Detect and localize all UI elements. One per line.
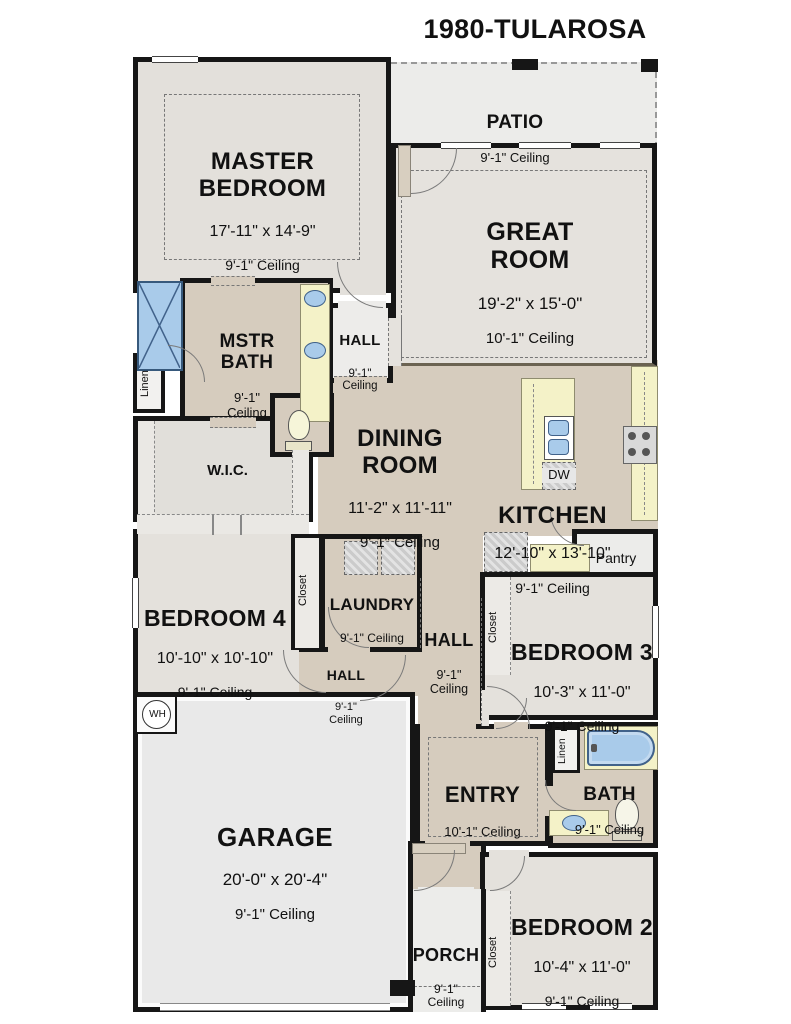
sink xyxy=(304,342,326,359)
label-garage: GARAGE 20'-0" x 20'-4" 9'-1" Ceiling xyxy=(180,805,370,942)
opening xyxy=(420,722,476,731)
opening xyxy=(388,318,402,366)
label-bedroom2: BEDROOM 2 10'-4" x 11'-0" 9'-1" Ceiling xyxy=(508,897,656,1024)
label-master-bedroom: MASTER BEDROOM 17'-11" x 14'-9" 9'-1" Ce… xyxy=(160,131,365,292)
wic-shelf xyxy=(137,514,309,534)
label-great-room: GREAT ROOM 19'-2" x 15'-0" 10'-1" Ceilin… xyxy=(430,200,630,365)
label-closet-b3: Closet xyxy=(487,595,509,659)
garage-door xyxy=(160,1003,390,1011)
page-title: 1980-TULAROSA xyxy=(400,14,670,44)
window xyxy=(152,56,198,63)
label-bedroom4: BEDROOM 4 10'-10" x 10'-10" 9'-1" Ceilin… xyxy=(140,588,290,719)
label-hall-b4: HALL 9'-1" Ceiling xyxy=(315,650,377,744)
floor-plan: 1980-TULAROSA xyxy=(0,0,791,1024)
kitchen-sink xyxy=(544,416,574,460)
patio-post xyxy=(641,59,658,72)
patio-post xyxy=(512,59,538,70)
label-porch: PORCH 9'-1" Ceiling xyxy=(410,927,482,1024)
label-pantry: Pantry xyxy=(576,551,656,567)
dishwasher-label: DW xyxy=(542,468,576,483)
stove xyxy=(623,426,657,464)
label-closet-b2: Closet xyxy=(487,920,509,984)
label-mstr-bath: MSTR BATH 9'-1" Ceiling xyxy=(196,313,298,438)
sink xyxy=(304,290,326,307)
wic-shelf xyxy=(138,421,155,517)
label-patio: PATIO 9'-1" Ceiling xyxy=(430,94,600,184)
label-bath: BATH 9'-1" Ceiling xyxy=(562,766,657,856)
hall-dashed-line xyxy=(481,598,482,726)
patio-door-leaf xyxy=(398,145,411,197)
window xyxy=(132,578,139,628)
label-wic: W.I.C. xyxy=(180,463,275,480)
island-dashed xyxy=(533,384,534,484)
label-dining-room: DINING ROOM 11'-2" x 11'-11" 9'-1" Ceili… xyxy=(325,408,475,570)
label-closet-b4: Closet xyxy=(297,558,319,622)
label-bedroom3: BEDROOM 3 10'-3" x 11'-0" 9'-1" Ceiling xyxy=(508,622,656,753)
window xyxy=(600,142,640,149)
label-hall-main: HALL 9'-1" Ceiling xyxy=(418,612,480,714)
label-hall-upper: HALL 9'-1" Ceiling xyxy=(331,315,389,411)
label-linen-master: Linen xyxy=(139,358,161,410)
wic-shelf xyxy=(292,450,309,518)
label-entry: ENTRY 10'-1" Ceiling xyxy=(420,765,545,858)
